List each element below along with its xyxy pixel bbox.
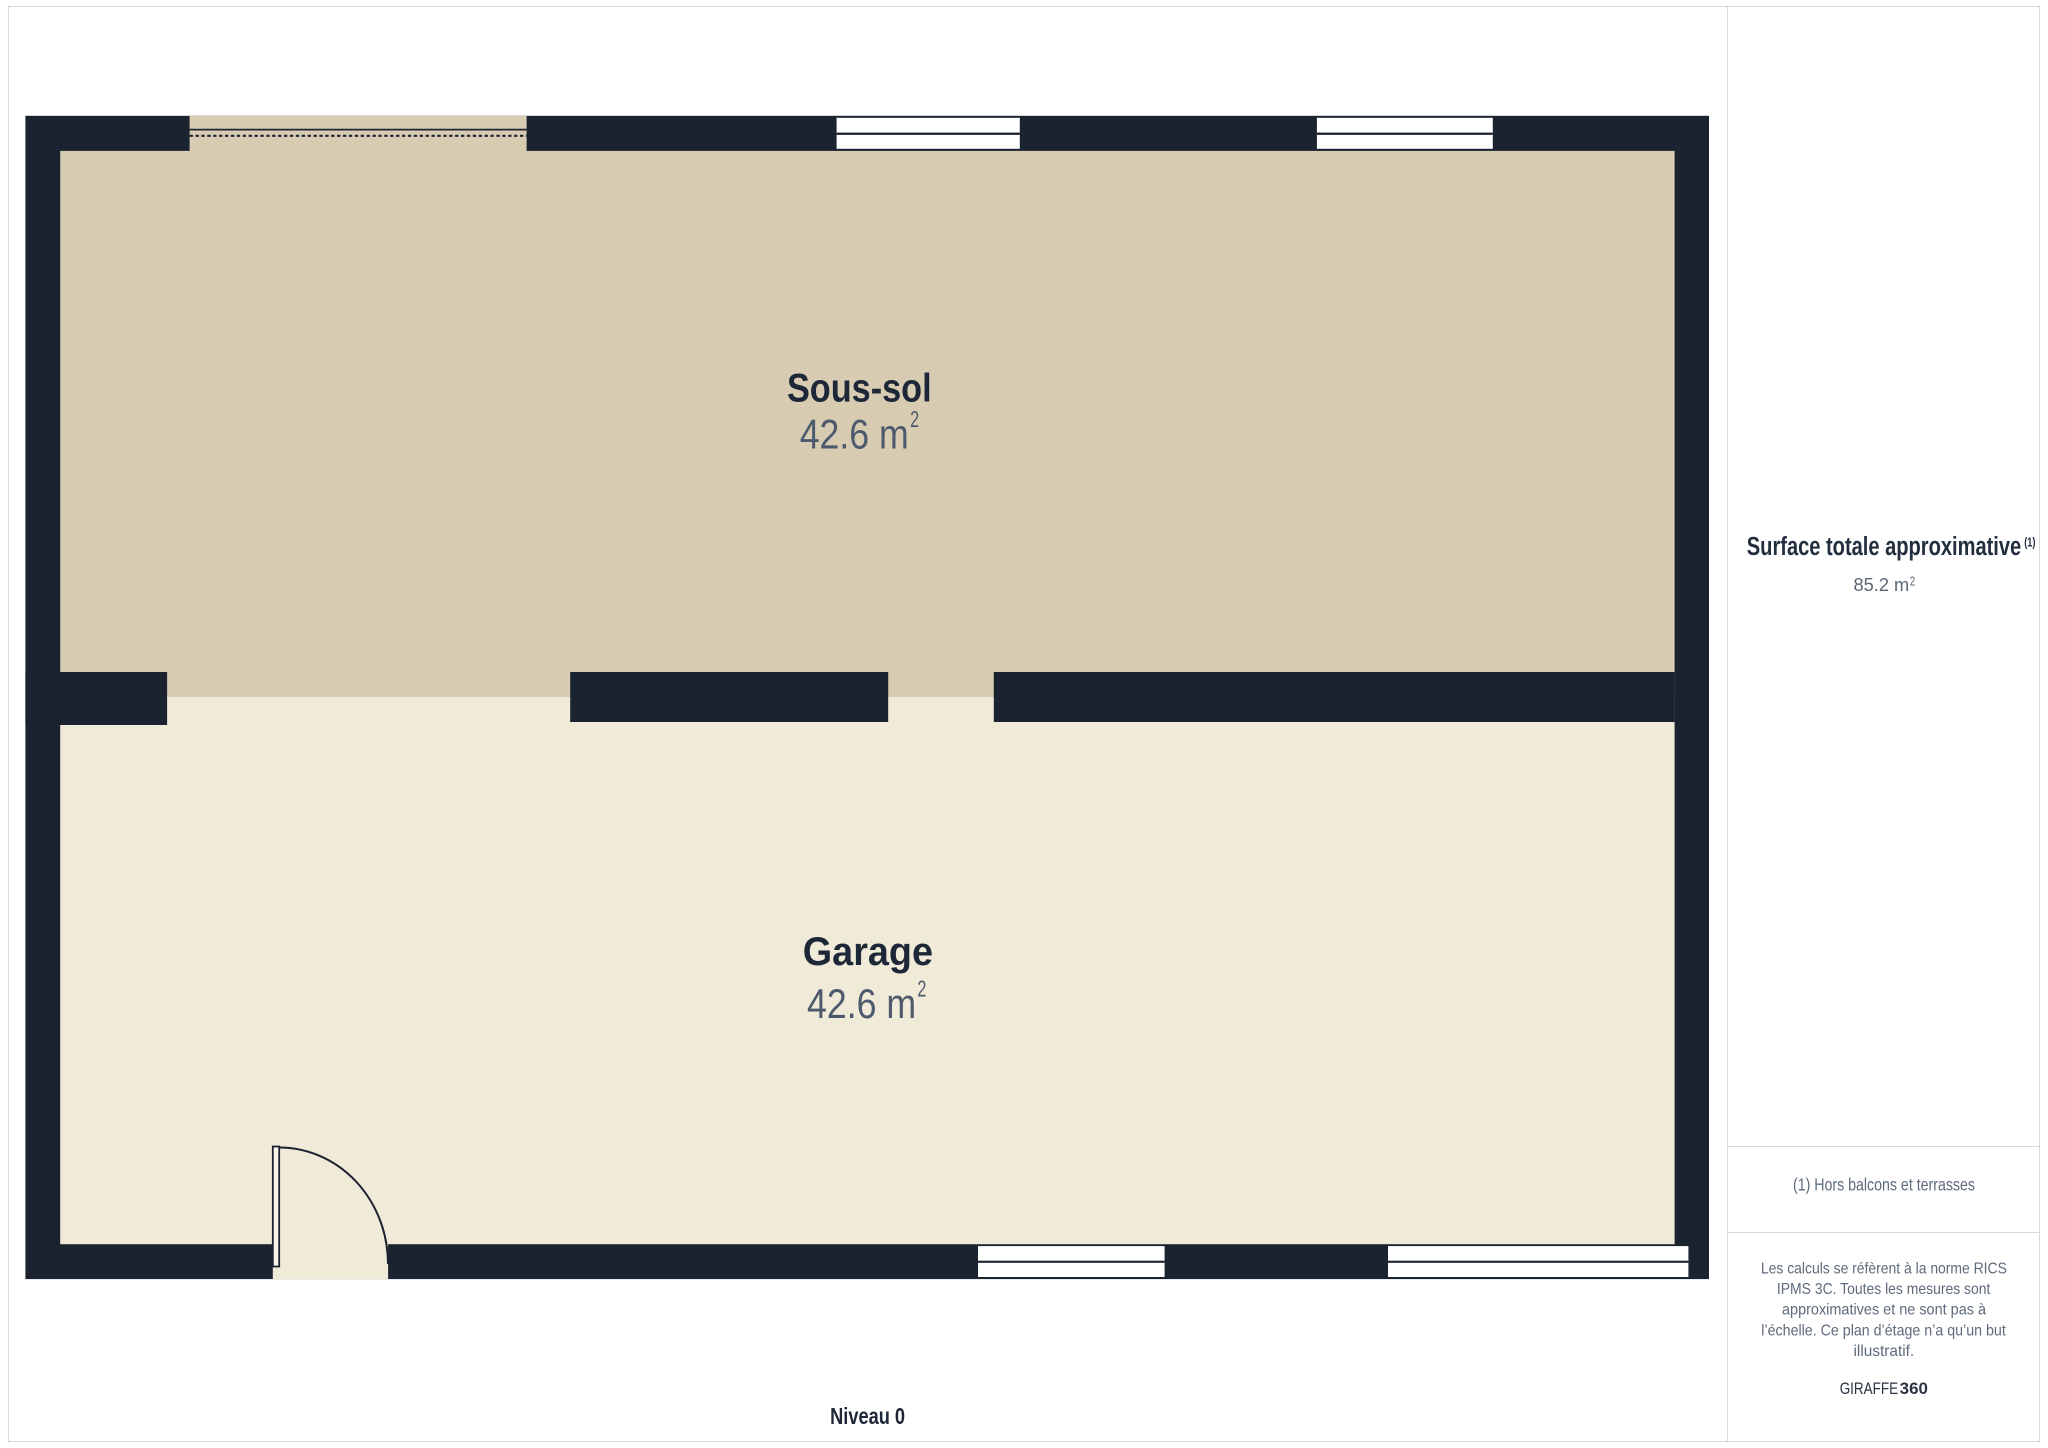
svg-text:illustratif.: illustratif. <box>1854 1343 1915 1360</box>
svg-text:Surface totale approximative: Surface totale approximative <box>1747 533 2021 561</box>
svg-text:85.2 m: 85.2 m <box>1854 574 1910 595</box>
svg-text:360: 360 <box>1900 1380 1928 1398</box>
svg-text:Les calculs se réfèrent à la n: Les calculs se réfèrent à la norme RICS <box>1761 1261 2007 1278</box>
svg-text:l’échelle. Ce plan d’étage n’a: l’échelle. Ce plan d’étage n’a qu’un but <box>1761 1322 2006 1339</box>
svg-text:42.6 m: 42.6 m <box>807 980 916 1027</box>
svg-text:(1) Hors balcons et terrasses: (1) Hors balcons et terrasses <box>1793 1175 1975 1195</box>
svg-text:(1): (1) <box>2024 535 2035 550</box>
svg-text:Garage: Garage <box>803 930 933 974</box>
svg-text:2: 2 <box>917 976 926 1002</box>
svg-text:42.6 m: 42.6 m <box>800 411 909 458</box>
svg-text:approximatives et ne sont pas: approximatives et ne sont pas à <box>1782 1302 1986 1319</box>
svg-text:GIRAFFE: GIRAFFE <box>1840 1380 1898 1398</box>
svg-text:IPMS 3C. Toutes les mesures so: IPMS 3C. Toutes les mesures sont <box>1777 1281 1991 1298</box>
svg-text:2: 2 <box>1910 574 1915 589</box>
svg-text:Sous-sol: Sous-sol <box>787 367 932 411</box>
svg-text:Niveau 0: Niveau 0 <box>830 1403 905 1429</box>
svg-text:2: 2 <box>910 406 919 432</box>
